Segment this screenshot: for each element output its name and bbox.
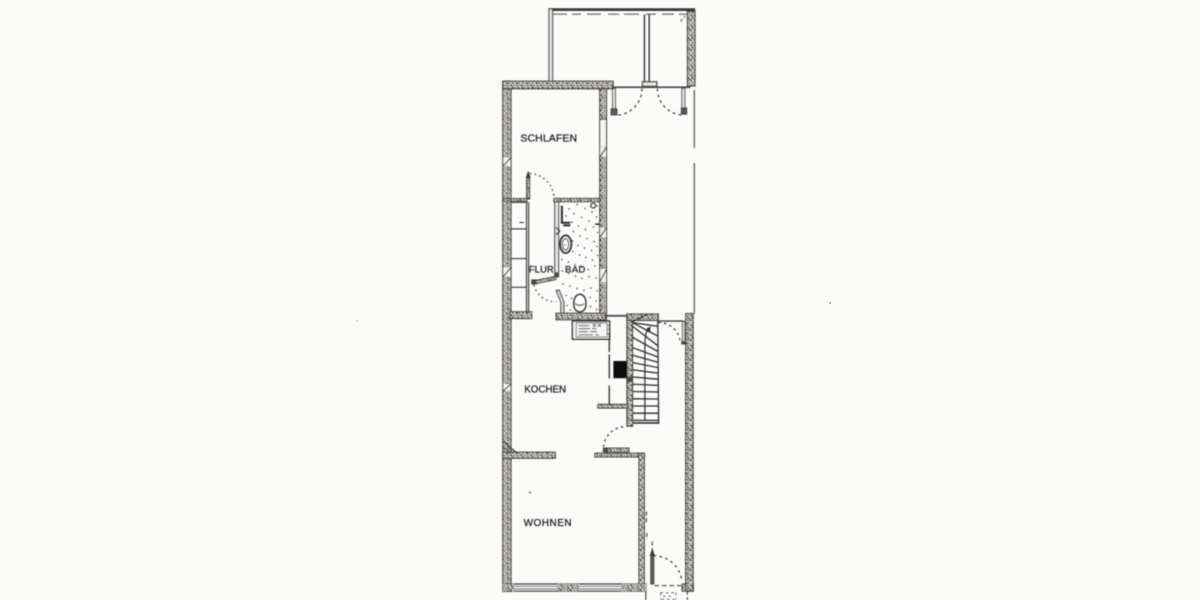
svg-text:WOHNEN: WOHNEN (524, 518, 573, 529)
svg-text:FLUR: FLUR (529, 265, 554, 276)
svg-text:KOCHEN: KOCHEN (524, 384, 566, 395)
svg-text:BAD: BAD (565, 265, 586, 276)
svg-text:SCHLAFEN: SCHLAFEN (520, 133, 577, 145)
